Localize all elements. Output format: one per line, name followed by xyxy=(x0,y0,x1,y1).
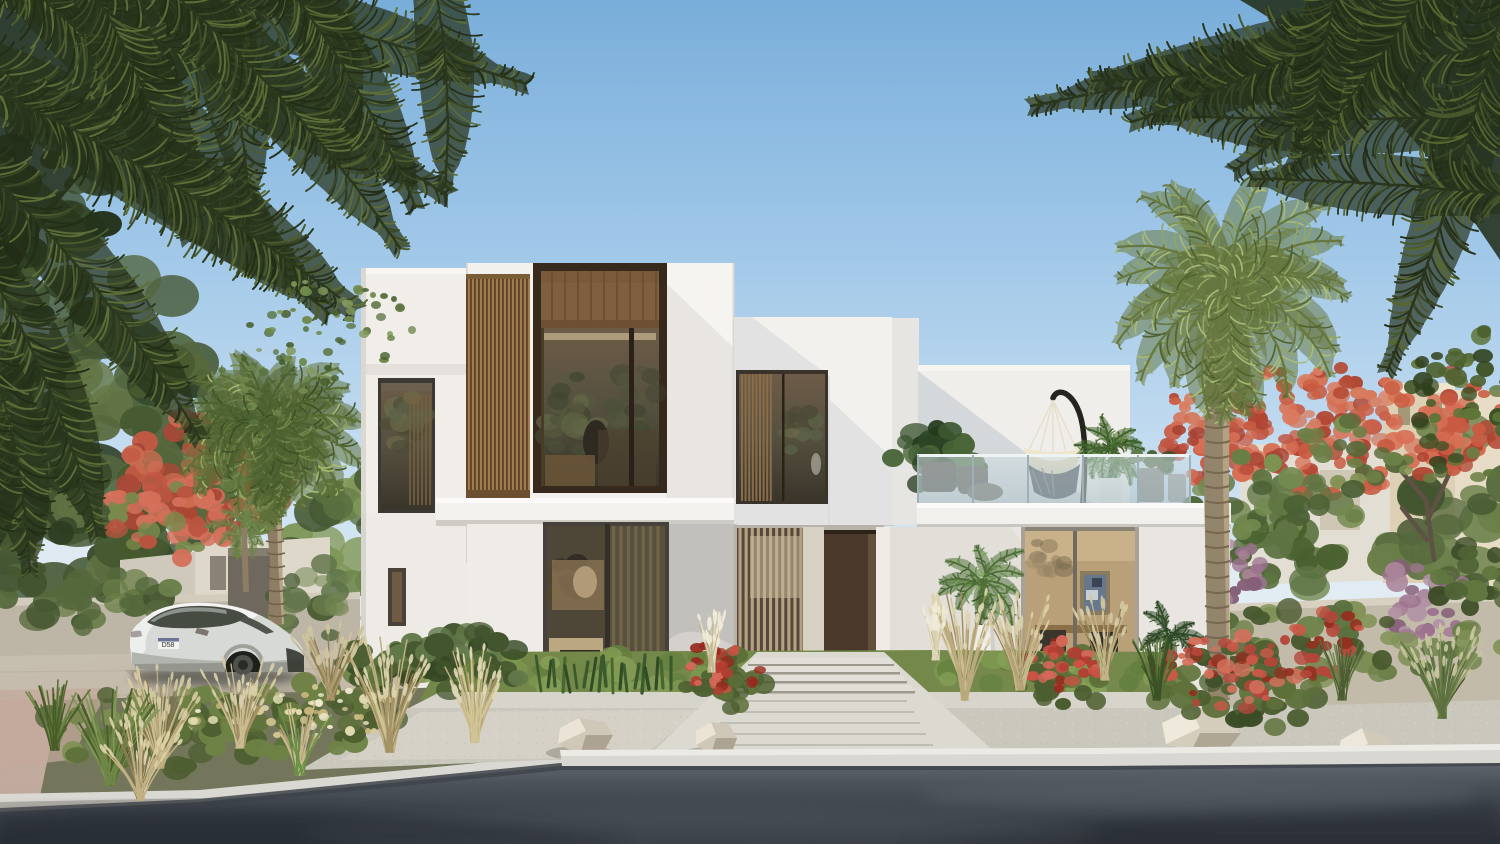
svg-text:D58: D58 xyxy=(162,642,175,649)
